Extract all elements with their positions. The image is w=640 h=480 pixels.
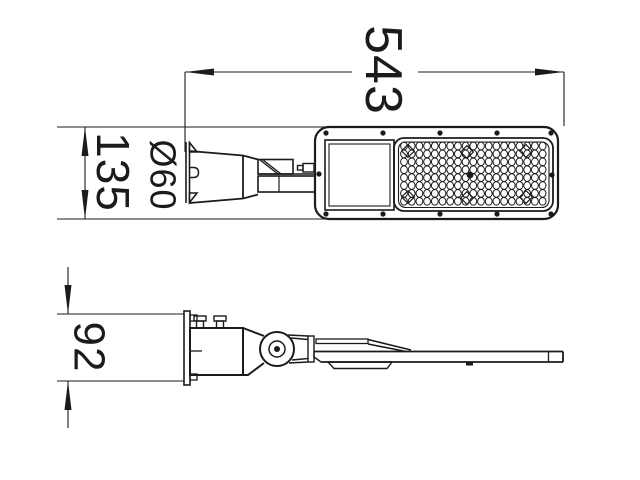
dimension-pole-diameter: Ø60 — [142, 139, 183, 210]
lens-cell — [455, 166, 462, 174]
lens-cell — [516, 182, 523, 190]
dimension-543-label: 543 — [354, 25, 412, 115]
dimension-92: 92 — [57, 267, 184, 428]
lens-cell — [524, 166, 531, 174]
lens-cell — [478, 182, 485, 190]
lens-cell — [478, 166, 485, 174]
lens-cell — [485, 158, 492, 166]
lens-cell — [493, 142, 500, 150]
lens-cell — [470, 142, 477, 150]
lens-cell — [401, 190, 408, 198]
dimension-135: 135 — [57, 127, 330, 219]
lens-cell — [493, 174, 500, 182]
lamp-head-top — [315, 127, 558, 219]
lens-cell — [431, 174, 438, 182]
lens-cell — [539, 166, 546, 174]
lens-cell — [532, 166, 539, 174]
lens-cell — [516, 158, 523, 166]
driver-compartment — [325, 140, 394, 210]
lens-cell — [508, 174, 515, 182]
mounting-bracket-top — [190, 151, 316, 203]
top-view: 543 135 Ø60 — [57, 25, 564, 219]
lens-cell — [401, 166, 408, 174]
lens-cell — [455, 182, 462, 190]
lens-cell — [485, 142, 492, 150]
lens-cell — [478, 197, 485, 205]
lens-cell — [424, 142, 431, 150]
lens-cell — [539, 158, 546, 166]
lens-cell — [501, 197, 508, 205]
lens-cell — [416, 190, 423, 198]
lens-cell — [424, 197, 431, 205]
lens-cell — [401, 174, 408, 182]
lens-cell — [539, 142, 546, 150]
lens-cell — [501, 182, 508, 190]
lens-cell — [501, 158, 508, 166]
lens-cell — [424, 150, 431, 158]
lens-cell — [416, 158, 423, 166]
lens-cell — [501, 174, 508, 182]
lens-cell — [478, 158, 485, 166]
lens-cell — [516, 190, 523, 198]
lens-cell — [408, 158, 415, 166]
lens-cell — [532, 182, 539, 190]
lens-cell — [439, 197, 446, 205]
lens-cell — [493, 166, 500, 174]
lens-cell — [532, 142, 539, 150]
lens-cell — [431, 190, 438, 198]
lens-cell — [485, 150, 492, 158]
lens-cell — [439, 166, 446, 174]
lens-cell — [439, 174, 446, 182]
lens-cell — [408, 166, 415, 174]
arrowhead-up-icon — [65, 381, 72, 410]
lens-cell — [416, 182, 423, 190]
lens-cell — [532, 190, 539, 198]
lens-cell — [532, 174, 539, 182]
lens-cell — [416, 197, 423, 205]
lens-cell — [493, 150, 500, 158]
lens-cell — [447, 174, 454, 182]
lens-cell — [455, 190, 462, 198]
lens-cell — [462, 158, 469, 166]
lens-cell — [524, 158, 531, 166]
arrowhead-down-icon — [65, 285, 72, 314]
lens-cell — [424, 166, 431, 174]
lens-cell — [478, 174, 485, 182]
lens-cell — [478, 142, 485, 150]
lens-cell — [524, 174, 531, 182]
lens-cell — [508, 197, 515, 205]
lens-cell — [455, 158, 462, 166]
lens-cell — [431, 150, 438, 158]
lens-cell — [408, 174, 415, 182]
lens-cell — [439, 182, 446, 190]
lens-cell — [501, 142, 508, 150]
lens-cell — [539, 182, 546, 190]
lens-cell — [424, 158, 431, 166]
lens-cell — [447, 190, 454, 198]
lens-cell — [478, 190, 485, 198]
lens-cell — [447, 166, 454, 174]
clamp-bolts — [194, 316, 226, 328]
led-lens-panel — [394, 138, 553, 211]
lens-cell — [485, 182, 492, 190]
lens-cell — [539, 150, 546, 158]
lens-cell — [431, 166, 438, 174]
lens-cell — [485, 190, 492, 198]
lens-cell — [447, 150, 454, 158]
lens-cell — [485, 174, 492, 182]
lens-cell — [470, 182, 477, 190]
pole-clamp-side — [184, 311, 264, 385]
lens-cell — [416, 174, 423, 182]
lens-cell — [508, 190, 515, 198]
lens-cell — [439, 158, 446, 166]
lens-cell — [532, 158, 539, 166]
lens-cell — [539, 174, 546, 182]
technical-drawing-canvas: 543 135 Ø60 — [0, 0, 640, 480]
lens-cell — [401, 158, 408, 166]
street-light-dimension-drawing: 543 135 Ø60 — [0, 0, 640, 480]
lens-cell — [501, 150, 508, 158]
lens-cell — [439, 190, 446, 198]
dimension-60-label: Ø60 — [142, 139, 183, 210]
lens-cell — [431, 182, 438, 190]
lens-cell — [493, 182, 500, 190]
adjustment-bolt — [303, 164, 314, 173]
lens-cell — [431, 197, 438, 205]
lens-cell — [470, 158, 477, 166]
lens-cell — [501, 190, 508, 198]
lens-cell — [508, 150, 515, 158]
lens-cell — [401, 182, 408, 190]
dimension-135-label: 135 — [87, 132, 139, 212]
lens-cell — [408, 182, 415, 190]
lens-cell — [416, 142, 423, 150]
lens-cell — [539, 190, 546, 198]
lens-cell — [431, 158, 438, 166]
lens-cell — [508, 142, 515, 150]
lens-cell — [455, 197, 462, 205]
lens-cell — [416, 150, 423, 158]
lens-cell — [493, 197, 500, 205]
lens-cell — [508, 182, 515, 190]
lens-cell — [455, 174, 462, 182]
lens-cell — [485, 166, 492, 174]
lens-cell — [424, 174, 431, 182]
dimension-543: 543 — [185, 25, 564, 152]
lens-cell — [539, 197, 546, 205]
lens-cell — [447, 158, 454, 166]
lens-cell — [424, 190, 431, 198]
lens-cell — [524, 182, 531, 190]
pivot-joint — [260, 332, 314, 366]
lens-cell — [462, 182, 469, 190]
side-view: 92 — [57, 267, 563, 428]
arrowhead-right-icon — [535, 69, 564, 76]
lens-cell — [508, 158, 515, 166]
lens-cell — [532, 197, 539, 205]
center-screw — [467, 172, 474, 179]
lens-cell — [493, 190, 500, 198]
lens-cell — [455, 150, 462, 158]
lens-cell — [478, 150, 485, 158]
lamp-head-side — [314, 339, 563, 369]
bottom-cover-plate — [328, 362, 392, 369]
arrowhead-left-icon — [185, 69, 214, 76]
lens-cell — [516, 174, 523, 182]
dimension-92-label: 92 — [65, 322, 114, 373]
lens-cell — [447, 142, 454, 150]
lens-cell — [501, 166, 508, 174]
lens-cell — [447, 182, 454, 190]
lens-cell — [416, 166, 423, 174]
cable-hook — [190, 168, 199, 178]
lens-cell — [431, 142, 438, 150]
lens-cell — [524, 197, 531, 205]
lens-cell — [516, 166, 523, 174]
lens-cell — [447, 197, 454, 205]
lens-cell — [439, 150, 446, 158]
lens-cell — [424, 182, 431, 190]
lens-cell — [508, 166, 515, 174]
lens-cell — [455, 142, 462, 150]
lens-cell — [493, 158, 500, 166]
lens-cell — [439, 142, 446, 150]
lens-cell — [485, 197, 492, 205]
drain-tab — [466, 362, 473, 366]
